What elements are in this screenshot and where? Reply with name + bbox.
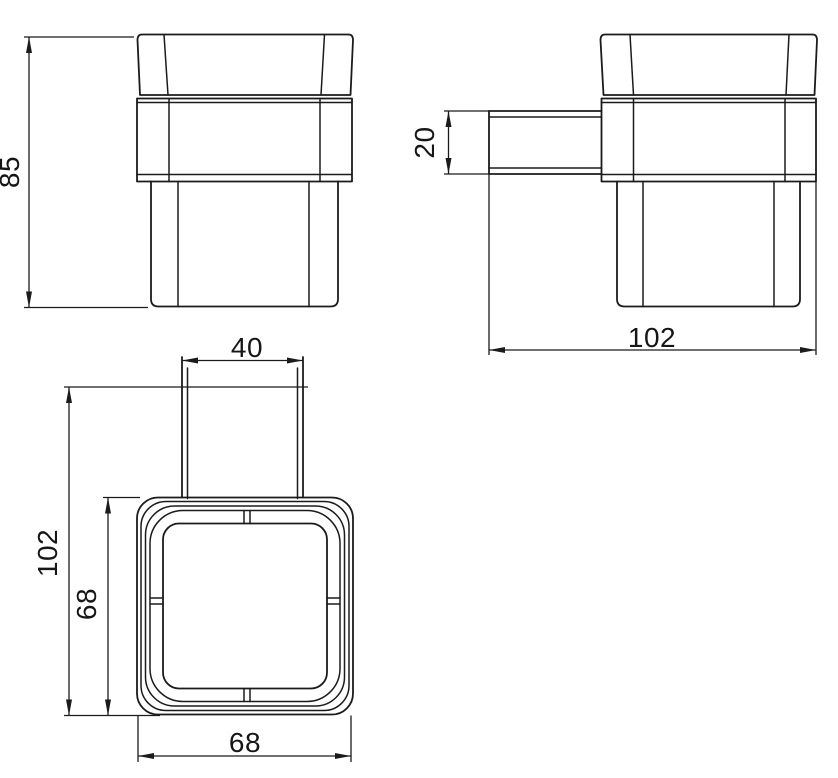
arrow-up-icon: [66, 387, 72, 403]
arrow-up-icon: [446, 111, 452, 127]
cup-body-outline: [617, 182, 800, 307]
dimension-bracket-width-label: 40: [231, 332, 263, 363]
arrow-left-icon: [182, 358, 198, 364]
arrow-right-icon: [335, 753, 351, 759]
side-view: 20 102: [409, 35, 817, 356]
arrow-left-icon: [489, 347, 505, 353]
cup-rim-inner-wall-left: [630, 35, 634, 96]
arrow-down-icon: [446, 158, 452, 174]
arrow-down-icon: [66, 700, 72, 716]
dimension-side-depth: 102: [489, 174, 816, 355]
mount-arm-plan: [182, 357, 303, 499]
cup-rim-inner-wall-left: [164, 35, 168, 96]
dimension-top-inner-depth-label: 68: [71, 588, 102, 620]
dimension-top-width-label: 68: [229, 727, 261, 758]
dimension-bracket-thickness: 20: [409, 111, 489, 174]
holder-ring-outer: [137, 498, 353, 715]
front-view: 85: [0, 35, 353, 308]
arrow-right-icon: [287, 358, 303, 364]
dimension-front-height: 85: [0, 37, 148, 308]
cup-opening: [163, 524, 327, 689]
technical-drawing-page: 85 20: [0, 0, 838, 778]
dimension-bracket-thickness-label: 20: [409, 126, 440, 158]
arrow-up-icon: [105, 498, 111, 514]
dimension-bracket-width: 40: [182, 332, 303, 364]
dimension-top-inner-depth: 68: [71, 498, 140, 716]
mount-arm: [489, 111, 602, 174]
arrow-up-icon: [26, 37, 32, 53]
dimension-side-depth-label: 102: [628, 322, 676, 353]
arrow-left-icon: [138, 753, 154, 759]
holder-ring-3: [146, 506, 345, 706]
holder-ring-2: [141, 502, 349, 711]
dimension-top-width: 68: [138, 716, 351, 763]
tumbler-holder-drawing: 85 20: [0, 0, 838, 778]
arrow-down-icon: [26, 292, 32, 308]
arrow-down-icon: [105, 700, 111, 716]
holder-ring-4: [150, 511, 340, 702]
holder-plan-outline: [137, 498, 353, 715]
cup-rim-inner-wall-right: [321, 35, 325, 96]
arrow-right-icon: [800, 347, 816, 353]
dimension-top-depth-label: 102: [32, 529, 63, 577]
cup-body-outline: [151, 182, 338, 307]
top-view: 40 102 68 68: [32, 332, 353, 762]
cup-rim-inner-wall-right: [786, 35, 789, 96]
dimension-front-height-label: 85: [0, 156, 25, 188]
cup-rim-outline: [138, 35, 354, 96]
